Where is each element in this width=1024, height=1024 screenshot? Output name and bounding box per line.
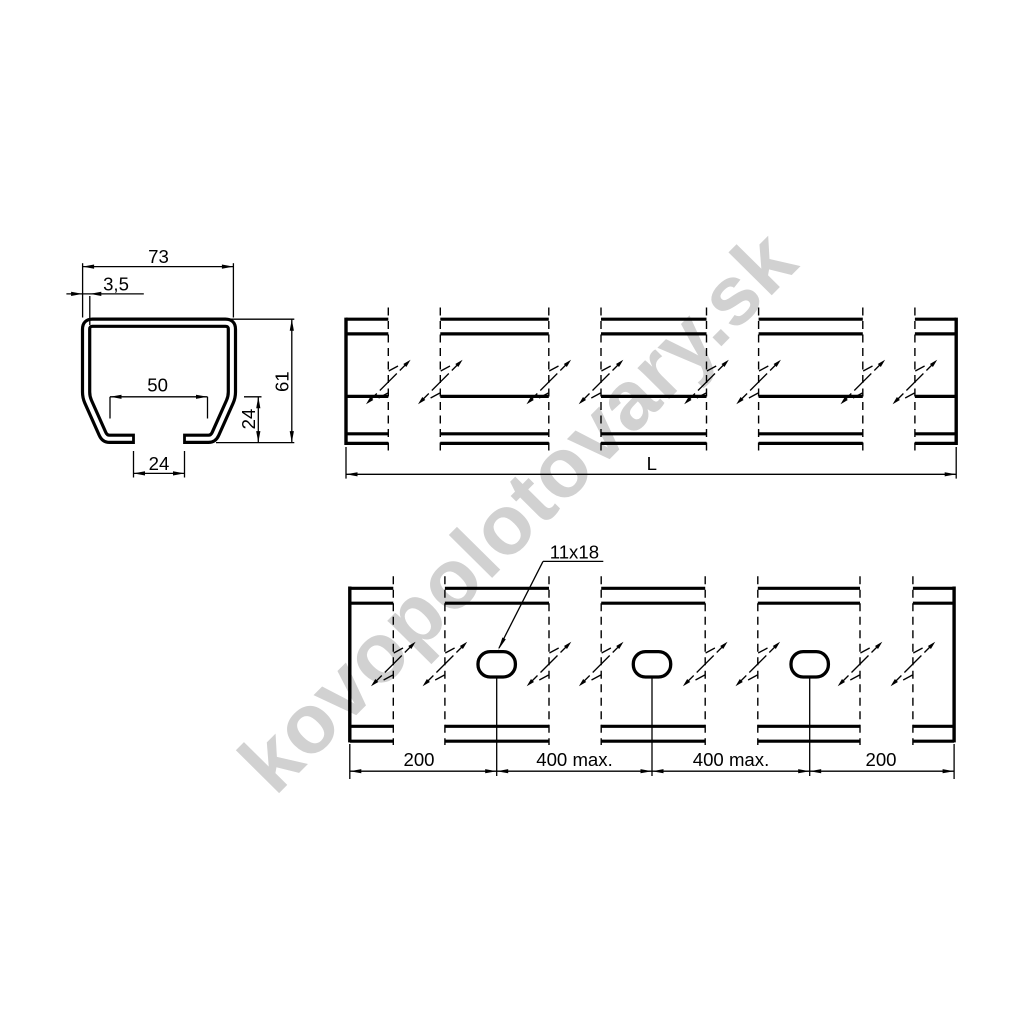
svg-text:3,5: 3,5 [103,273,129,294]
svg-text:11x18: 11x18 [550,542,599,563]
svg-text:24: 24 [149,453,170,474]
svg-text:50: 50 [147,374,168,395]
svg-text:400 max.: 400 max. [536,749,612,770]
svg-text:200: 200 [865,749,896,770]
svg-text:24: 24 [238,409,259,430]
svg-text:L: L [647,453,657,474]
svg-text:400 max.: 400 max. [693,749,769,770]
svg-text:61: 61 [272,371,293,392]
svg-text:200: 200 [403,749,434,770]
svg-text:73: 73 [148,246,169,267]
